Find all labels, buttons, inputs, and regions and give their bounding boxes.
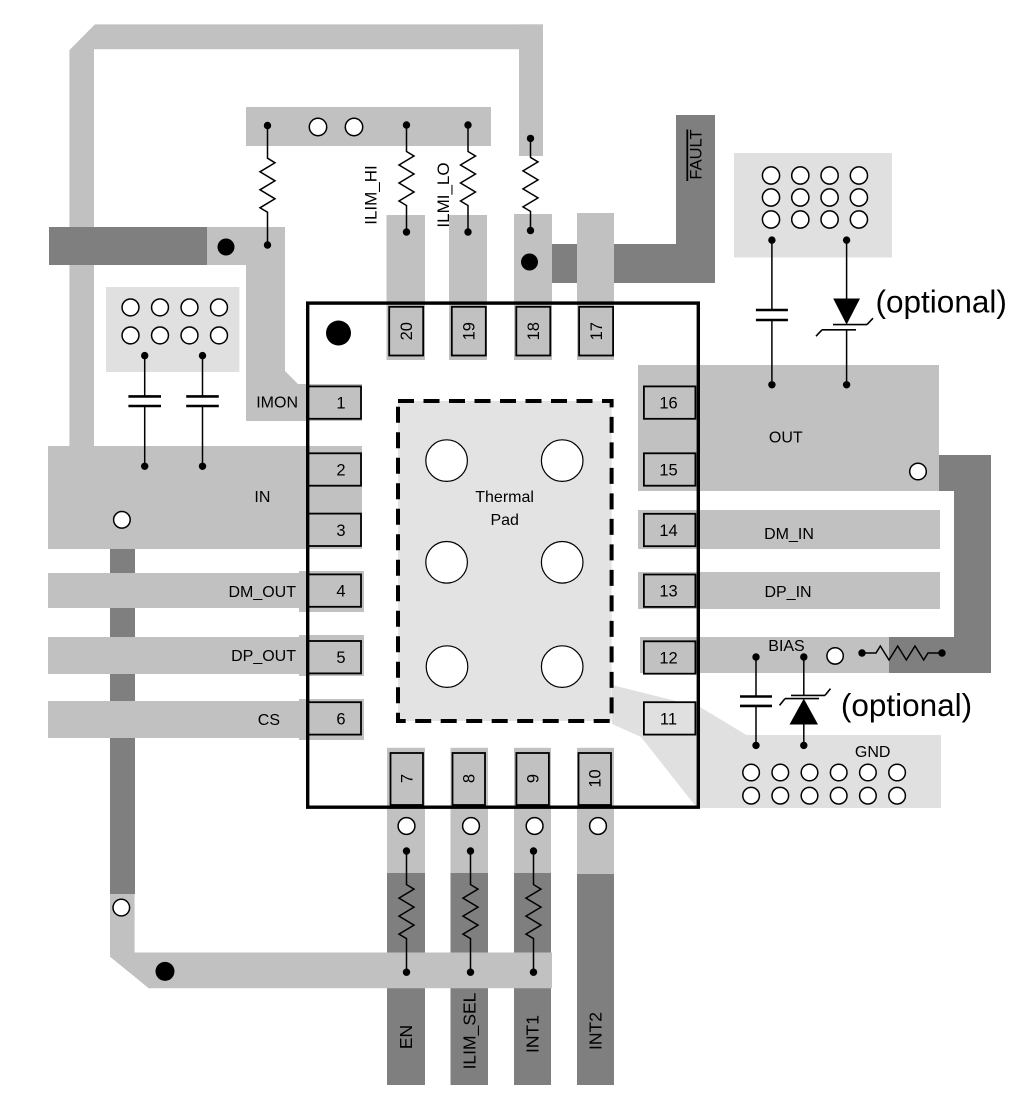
svg-text:10: 10 <box>587 769 605 787</box>
svg-text:IN: IN <box>254 489 270 506</box>
svg-text:1: 1 <box>336 395 345 413</box>
svg-text:DP_IN: DP_IN <box>764 584 811 601</box>
svg-text:5: 5 <box>336 649 345 667</box>
svg-text:6: 6 <box>336 710 345 728</box>
svg-text:20: 20 <box>398 322 416 340</box>
svg-text:DM_OUT: DM_OUT <box>228 584 296 601</box>
svg-text:14: 14 <box>659 522 677 540</box>
svg-text:INT1: INT1 <box>523 1015 543 1053</box>
svg-text:11: 11 <box>660 710 677 728</box>
svg-text:15: 15 <box>659 462 677 480</box>
svg-text:BIAS: BIAS <box>768 638 804 655</box>
svg-text:(optional): (optional) <box>841 687 972 723</box>
svg-text:3: 3 <box>336 522 345 540</box>
svg-text:DP_OUT: DP_OUT <box>231 648 296 665</box>
svg-text:4: 4 <box>336 583 345 601</box>
svg-text:18: 18 <box>525 322 543 340</box>
svg-text:17: 17 <box>588 322 606 340</box>
svg-text:OUT: OUT <box>769 430 803 447</box>
svg-text:GND: GND <box>855 744 891 761</box>
svg-text:8: 8 <box>461 774 479 783</box>
svg-text:ILIM_SEL: ILIM_SEL <box>459 992 480 1069</box>
svg-text:INT2: INT2 <box>586 1012 606 1050</box>
svg-text:FAULT: FAULT <box>688 129 706 179</box>
svg-text:2: 2 <box>336 462 345 480</box>
svg-text:IMON: IMON <box>256 395 298 412</box>
svg-text:ILIM_HI: ILIM_HI <box>361 165 380 225</box>
svg-text:16: 16 <box>659 395 677 413</box>
svg-text:7: 7 <box>399 774 417 783</box>
svg-text:13: 13 <box>659 583 677 601</box>
svg-text:ILMI_LO: ILMI_LO <box>434 162 453 227</box>
svg-text:EN: EN <box>396 1025 416 1049</box>
svg-text:Pad: Pad <box>490 512 518 529</box>
svg-text:Thermal: Thermal <box>475 489 534 506</box>
svg-text:12: 12 <box>659 650 677 668</box>
svg-text:9: 9 <box>524 774 542 783</box>
svg-text:(optional): (optional) <box>876 284 1007 320</box>
svg-text:19: 19 <box>461 322 479 340</box>
svg-text:CS: CS <box>258 712 280 729</box>
svg-text:DM_IN: DM_IN <box>764 526 814 543</box>
